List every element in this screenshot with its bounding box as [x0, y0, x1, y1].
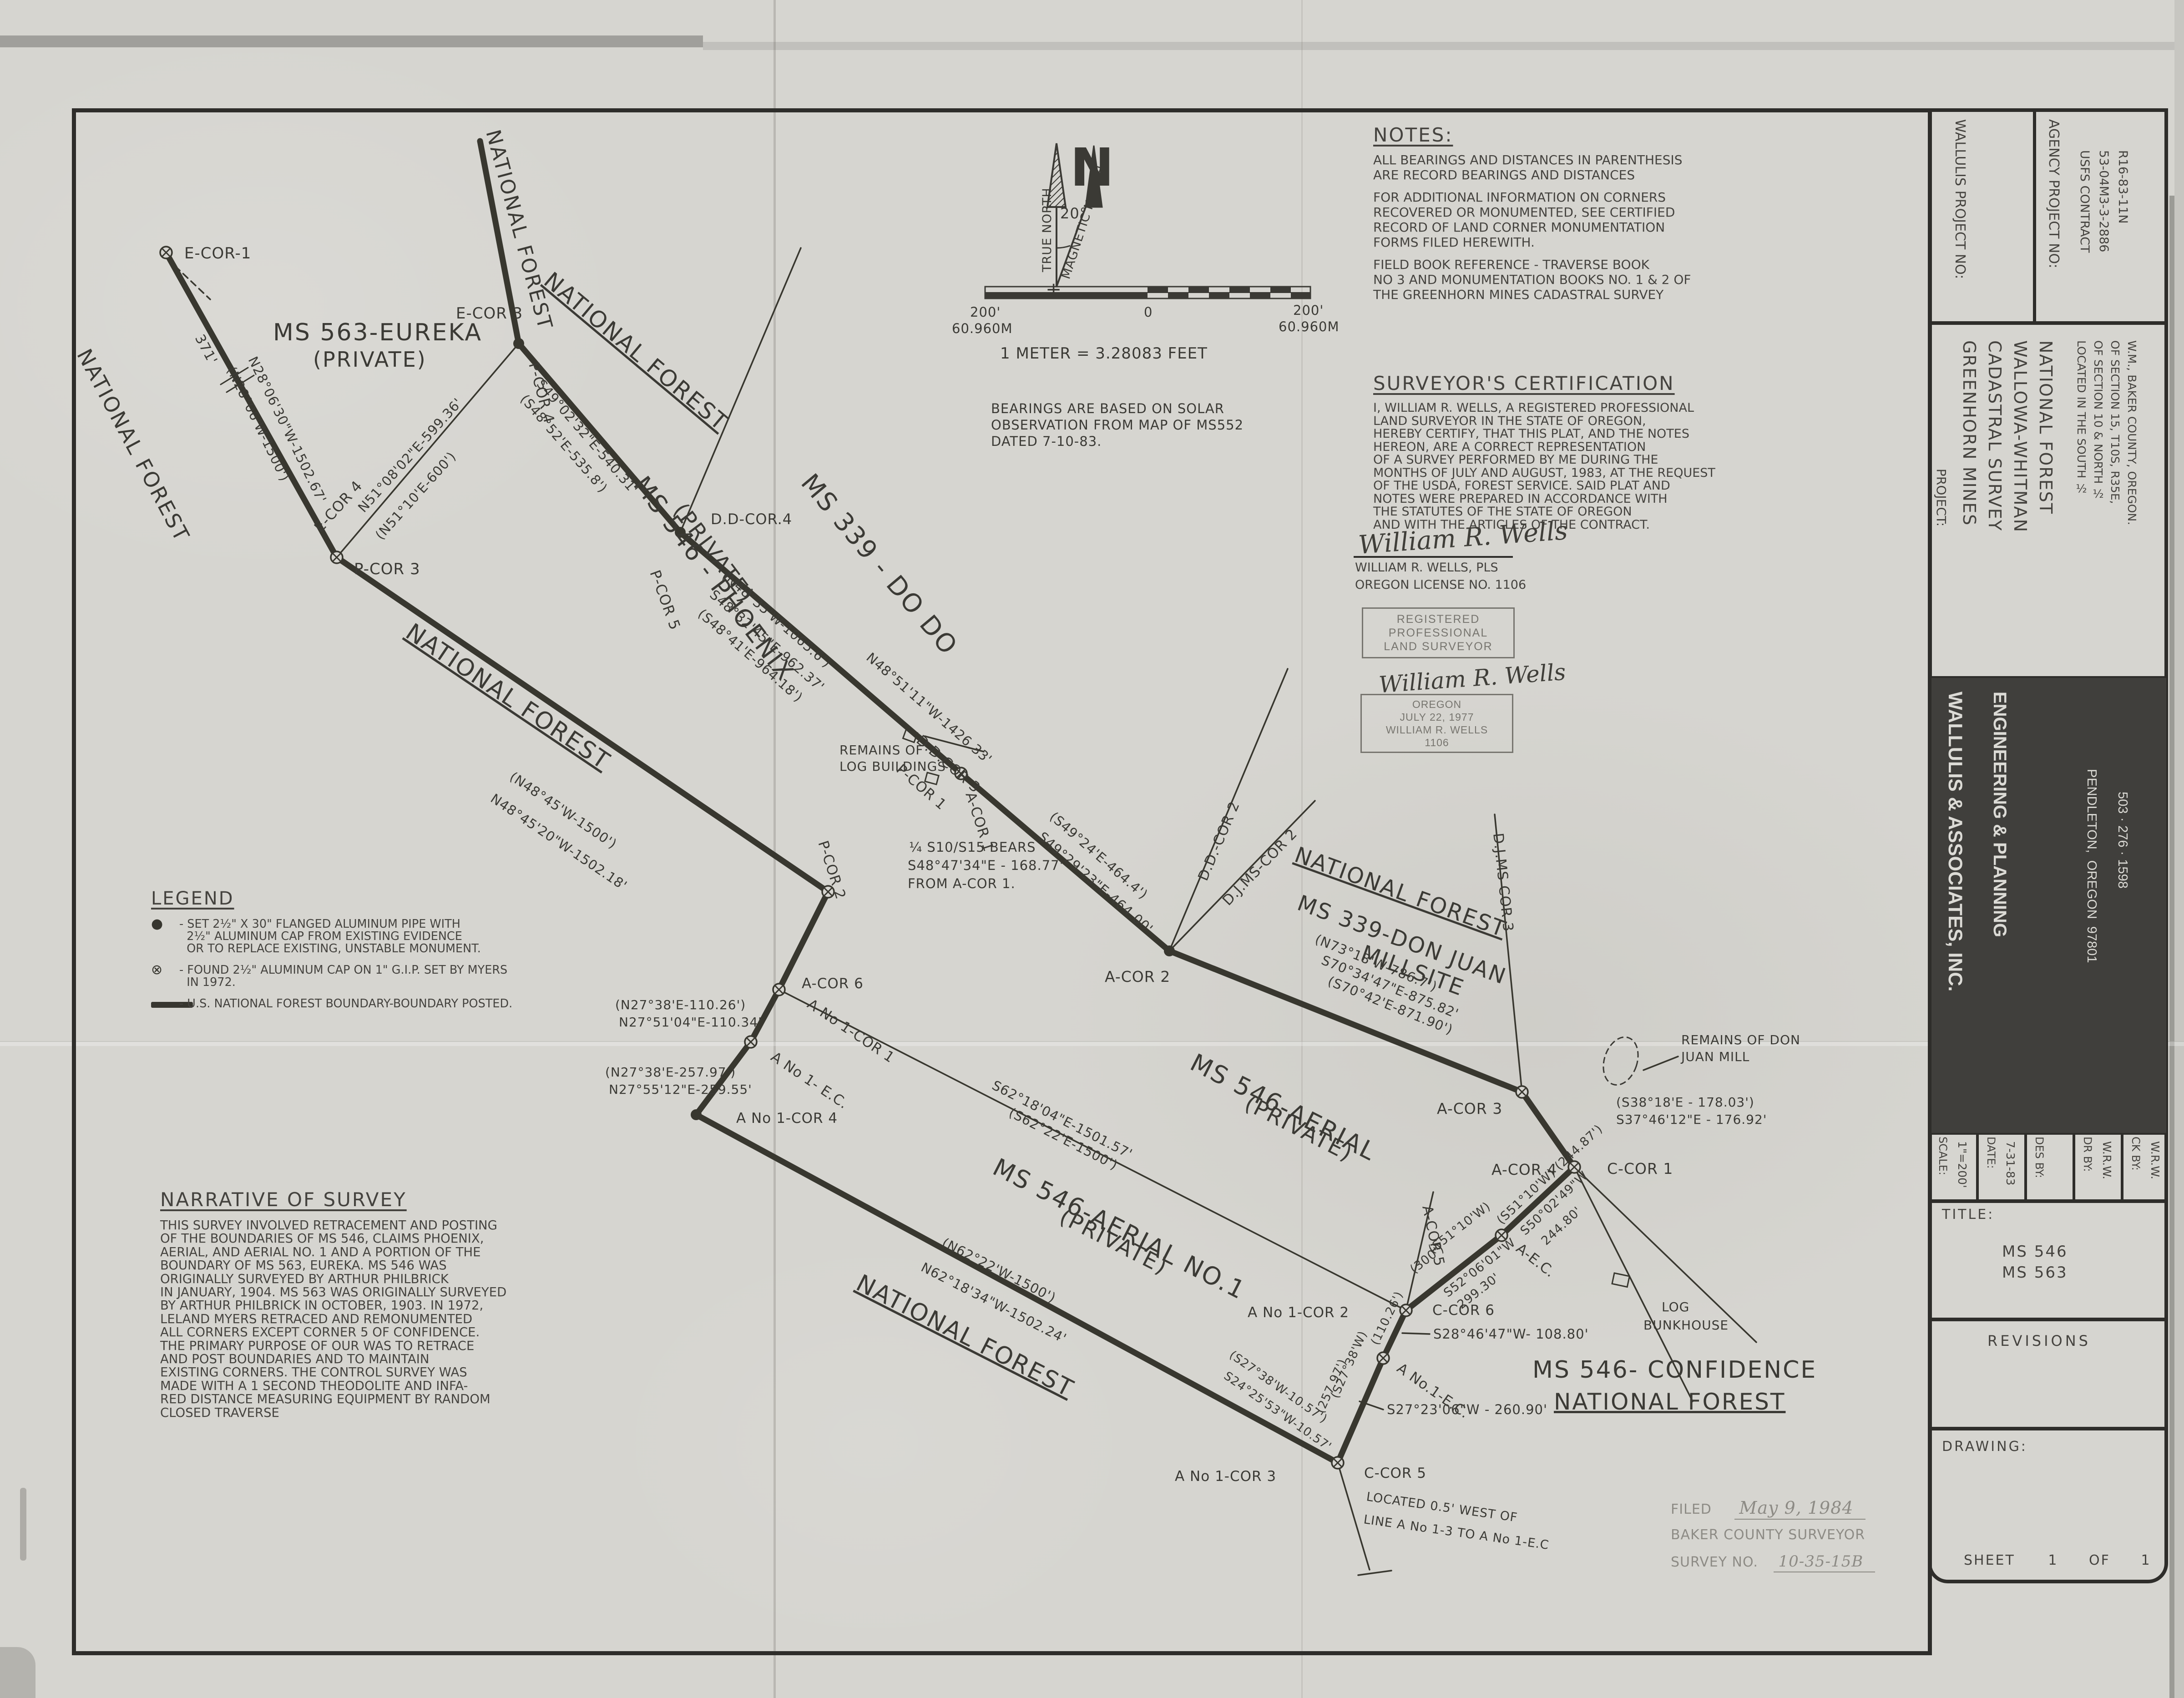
title-value: MS 546MS 563	[2002, 1241, 2068, 1283]
map-label: MS 546- CONFIDENCE	[1532, 1356, 1817, 1384]
text-line: HEREBY CERTIFY, THAT THIS PLAT, AND THE …	[1373, 428, 1919, 441]
map-label: LOG	[1662, 1299, 1689, 1314]
text-line: PROFESSIONAL	[1363, 626, 1513, 640]
text-line: ALL BEARINGS AND DISTANCES IN PARENTHESI…	[1373, 152, 1910, 167]
legend-title: LEGEND	[151, 888, 834, 909]
text-line: LAND SURVEYOR	[1363, 640, 1513, 653]
text-line: FORMS FILED HEREWITH.	[1373, 235, 1910, 250]
date-value: 7-31-83	[2004, 1141, 2017, 1186]
text-line: MS 563	[2002, 1262, 2068, 1283]
found-monument-icon	[331, 551, 343, 563]
filed-stamp: FILED May 9, 1984	[1671, 1498, 1865, 1518]
map-label: A-COR 3	[1437, 1100, 1502, 1117]
text-line: OF THE USDA, FOREST SERVICE. SAID PLAT A…	[1373, 480, 1919, 493]
map-label: 60.960M	[1279, 319, 1340, 334]
found-monument-icon	[1400, 1304, 1412, 1316]
text-line: - FOUND 2½" ALUMINUM CAP ON 1" G.I.P. SE…	[179, 964, 507, 976]
text-line: BOUNDARY OF MS 563, EUREKA. MS 546 WAS	[160, 1259, 797, 1272]
certification-block: SURVEYOR'S CERTIFICATION I, WILLIAM R. W…	[1373, 372, 1919, 531]
map-label: LOG BUILDINGS	[839, 759, 946, 774]
forest-boundary-line-icon	[151, 998, 179, 1010]
map-label: NATIONAL FOREST	[401, 618, 615, 775]
text-line: ARE RECORD BEARINGS AND DISTANCES	[1373, 167, 1910, 182]
text-line: NO 3 AND MONUMENTATION BOOKS NO. 1 & 2 O…	[1373, 272, 1910, 287]
date-label: DATE:	[1985, 1137, 1997, 1169]
tb-cell-div-1	[1976, 1133, 1979, 1202]
firm-band	[1931, 678, 2166, 1133]
map-label: MS 339 - DO DO	[795, 468, 963, 661]
text-line: IN 1972.	[179, 976, 507, 989]
text-line: EXISTING CORNERS. THE CONTROL SURVEY WAS	[160, 1366, 797, 1379]
found-monument-icon	[1332, 1457, 1344, 1469]
text-line: RED DISTANCE MEASURING EQUIPMENT BY RAND…	[160, 1393, 797, 1406]
text-line: FIELD BOOK REFERENCE - TRAVERSE BOOK	[1373, 257, 1910, 272]
of-number: 1	[2141, 1552, 2151, 1568]
text-line: NATIONAL FOREST	[2033, 340, 2058, 533]
text-line: AERIAL, AND AERIAL NO. 1 AND A PORTION O…	[160, 1246, 797, 1259]
tb-cell-div-3	[2073, 1133, 2075, 1202]
map-label: A No 1-COR 4	[736, 1110, 838, 1127]
mill-ruin-outline	[1598, 1033, 1644, 1090]
tb-cell-div-4	[2121, 1133, 2123, 1202]
found-monument-icon	[160, 247, 172, 258]
text-line: OF A SURVEY PERFORMED BY ME DURING THE	[1373, 454, 1919, 467]
claim-line	[337, 344, 519, 557]
map-label: S37°46'12"E - 176.92'	[1616, 1112, 1767, 1127]
map-label: S48°47'34"E - 168.77'	[908, 858, 1064, 873]
text-line: OF THE BOUNDARIES OF MS 546, CLAIMS PHOE…	[160, 1232, 797, 1245]
text-line: I, WILLIAM R. WELLS, A REGISTERED PROFES…	[1373, 402, 1919, 415]
map-label: DATED 7-10-83.	[991, 434, 1102, 449]
legend-item-set-monument: ● - SET 2½" X 30" FLANGED ALUMINUM PIPE …	[151, 918, 834, 955]
notes-block: NOTES: ALL BEARINGS AND DISTANCES IN PAR…	[1373, 124, 1910, 302]
notes-paragraph-2: FOR ADDITIONAL INFORMATION ON CORNERSREC…	[1373, 190, 1910, 250]
text-line: JULY 22, 1977	[1362, 711, 1512, 723]
map-label: LINE A No 1-3 TO A No 1-E.C	[1363, 1512, 1550, 1552]
scale-bar	[985, 287, 1310, 298]
set-monument-icon	[691, 1109, 702, 1120]
sheet-line: SHEET 1 OF 1	[1964, 1552, 2151, 1568]
map-label: 1 METER = 3.28083 FEET	[1000, 344, 1208, 363]
map-label: (N62°22'W-1500')	[940, 1235, 1059, 1306]
notes-paragraph-3: FIELD BOOK REFERENCE - TRAVERSE BOOKNO 3…	[1373, 257, 1910, 302]
firm-name: WALLULIS & ASSOCIATES, INC.	[1944, 692, 1966, 991]
map-label: (S38°18'E - 178.03')	[1616, 1095, 1754, 1110]
drawing-label: DRAWING:	[1942, 1439, 2027, 1455]
set-monument-icon	[513, 338, 524, 349]
text-line: LELAND MYERS RETRACED AND REMONUMENTED	[160, 1313, 797, 1326]
map-label: A No 1-COR 2	[1248, 1304, 1349, 1321]
text-line: OF SECTION 15, T10S, R35E,	[2107, 340, 2123, 525]
text-line: WILLIAM R. WELLS	[1362, 723, 1512, 736]
text-line: CLOSED TRAVERSE	[160, 1406, 797, 1420]
text-line: CADASTRAL SURVEY	[1982, 340, 2007, 533]
wallulis-project-no-label: WALLULIS PROJECT NO:	[1952, 119, 1968, 279]
map-label: P-COR 5	[646, 568, 684, 632]
building-outline	[1612, 1273, 1629, 1287]
found-monument-icon	[1377, 1352, 1389, 1364]
certification-body: I, WILLIAM R. WELLS, A REGISTERED PROFES…	[1373, 402, 1919, 531]
map-label: FROM A-COR 1.	[908, 876, 1016, 891]
map-label: NATIONAL FOREST	[72, 345, 194, 546]
text-line: THE PRIMARY PURPOSE OF OUR WAS TO RETRAC…	[160, 1339, 797, 1353]
scale-value: 1"=200'	[1956, 1141, 1969, 1188]
found-monument-circled-x-icon: ⊗	[151, 964, 179, 976]
text-line: IN JANUARY, 1904. MS 563 WAS ORIGINALLY …	[160, 1286, 797, 1299]
text-line: OREGON	[1362, 698, 1512, 711]
tb-divider-row1	[2033, 108, 2036, 325]
claim-line	[1643, 1056, 1678, 1070]
filed-date: May 9, 1984	[1734, 1498, 1865, 1520]
tb-divider-6	[1928, 1427, 2168, 1430]
map-label: S28°46'47"W- 108.80'	[1433, 1326, 1589, 1342]
text-line: HEREON, ARE A CORRECT REPRESENTATION	[1373, 441, 1919, 454]
map-label: BEARINGS ARE BASED ON SOLAR	[991, 401, 1224, 416]
map-label: 60.960M	[952, 321, 1013, 336]
set-monument-dot-icon: ●	[151, 918, 179, 930]
text-line: R16-83-11N	[2113, 150, 2132, 253]
map-label: C-COR 6	[1432, 1302, 1495, 1319]
text-line: BY ARTHUR PHILBRICK IN OCTOBER, 1903. IN…	[160, 1299, 797, 1312]
text-line: WALLOWA-WHITMAN	[2007, 340, 2033, 533]
filed-survey-no: SURVEY NO. 10-35-15B	[1671, 1552, 1875, 1571]
project-name: GREENHORN MINESCADASTRAL SURVEYWALLOWA-W…	[1956, 340, 2058, 533]
text-line: - U.S. NATIONAL FOREST BOUNDARY-BOUNDARY…	[179, 998, 512, 1010]
text-line: ALL CORNERS EXCEPT CORNER 5 OF CONFIDENC…	[160, 1326, 797, 1339]
notes-title: NOTES:	[1373, 124, 1910, 146]
agency-project-no-label: AGENCY PROJECT NO:	[2046, 119, 2062, 268]
project-label: PROJECT:	[1934, 469, 1949, 526]
ck-by-label: CK BY:	[2129, 1137, 2142, 1171]
surveyor-name: WILLIAM R. WELLS, PLS	[1355, 561, 1498, 575]
text-line: USFS CONTRACT	[2075, 150, 2094, 253]
text-line: NOTES WERE PREPARED IN ACCORDANCE WITH	[1373, 493, 1919, 506]
map-label: A-E.C.	[1513, 1240, 1558, 1281]
map-label: 0	[1144, 304, 1153, 320]
map-label: A-COR 2	[1105, 968, 1170, 985]
map-label: S27°23'06"W - 260.90'	[1387, 1402, 1547, 1417]
map-label: REMAINS OF	[839, 743, 923, 758]
surveyor-license: OREGON LICENSE NO. 1106	[1355, 578, 1526, 592]
map-label: P-COR 3	[354, 560, 420, 578]
legend-item-forest-boundary: - U.S. NATIONAL FOREST BOUNDARY-BOUNDARY…	[151, 998, 834, 1010]
text-line: THIS SURVEY INVOLVED RETRACEMENT AND POS…	[160, 1219, 797, 1232]
firm-phone: 503 · 276 · 1598	[2115, 792, 2130, 889]
map-label: A No 1-COR 3	[1175, 1468, 1276, 1485]
sheet-word: SHEET	[1964, 1552, 2015, 1568]
text-line: AND POST BOUNDARIES AND TO MAINTAIN	[160, 1353, 797, 1366]
revisions-label: REVISIONS	[1987, 1332, 2091, 1349]
map-label: OBSERVATION FROM MAP OF MS552	[991, 417, 1244, 433]
signature-rule	[1354, 556, 1513, 558]
des-by-label: DES BY:	[2033, 1137, 2046, 1178]
map-label: (N27°38'E-257.97')	[605, 1065, 736, 1080]
narrative-body: THIS SURVEY INVOLVED RETRACEMENT AND POS…	[160, 1219, 797, 1420]
firm-city: PENDLETON, OREGON 97801	[2084, 769, 2099, 963]
text-line: RECORD OF LAND CORNER MONUMENTATION	[1373, 220, 1910, 235]
map-label: 200'	[1293, 303, 1324, 318]
tb-divider-1	[1928, 321, 2168, 325]
narrative-title: NARRATIVE OF SURVEY	[160, 1188, 797, 1211]
map-label: NATIONAL FOREST	[481, 127, 557, 333]
agency-project-no-value: USFS CONTRACT53-04M3-3-2886R16-83-11N	[2075, 150, 2132, 253]
map-label: C-COR 5	[1364, 1465, 1426, 1481]
map-label: A No 1- E.C.	[768, 1049, 851, 1112]
found-monument-icon	[745, 1036, 757, 1048]
text-line: 53-04M3-3-2886	[2094, 150, 2113, 253]
text-line: W.M., BAKER COUNTY, OREGON.	[2123, 340, 2140, 525]
found-monument-icon	[1516, 1086, 1528, 1098]
notes-paragraph-1: ALL BEARINGS AND DISTANCES IN PARENTHESI…	[1373, 152, 1910, 182]
map-label: E-COR 3	[456, 304, 523, 323]
text-line: RECOVERED OR MONUMENTED, SEE CERTIFIED	[1373, 205, 1910, 220]
map-label: 20°	[1060, 205, 1087, 222]
claim-line	[1402, 1333, 1430, 1334]
text-line: MS 546	[2002, 1241, 2068, 1262]
text-line: FOR ADDITIONAL INFORMATION ON CORNERS	[1373, 190, 1910, 205]
map-label: MS 563-EUREKA	[273, 319, 482, 346]
scale-label: SCALE:	[1936, 1137, 1949, 1175]
map-label: JUAN MILL	[1680, 1049, 1749, 1064]
narrative-block: NARRATIVE OF SURVEY THIS SURVEY INVOLVED…	[160, 1188, 797, 1420]
text-line: 1106	[1362, 736, 1512, 749]
survey-plat-sheet: E-COR-1371'MS 563-EUREKA(PRIVATE)NATIONA…	[0, 0, 2184, 1698]
map-label: TRUE NORTH	[1040, 187, 1054, 273]
map-label: ¼ S10/S15 BEARS	[909, 839, 1036, 855]
text-line: MADE WITH A 1 SECOND THEODOLITE AND INFA…	[160, 1380, 797, 1393]
claim-line	[1574, 1167, 1756, 1342]
sheet-number: 1	[2048, 1552, 2058, 1568]
text-line: LOCATED IN THE SOUTH ½	[2073, 340, 2090, 525]
text-line: THE GREENHORN MINES CADASTRAL SURVEY	[1373, 287, 1910, 302]
text-line: GREENHORN MINES	[1956, 340, 1982, 533]
dr-by-label: DR BY:	[2081, 1137, 2094, 1172]
certification-title: SURVEYOR'S CERTIFICATION	[1373, 372, 1919, 394]
oregon-license-stamp: OREGONJULY 22, 1977WILLIAM R. WELLS1106	[1360, 694, 1513, 753]
map-label: +	[1046, 278, 1063, 300]
firm-dept: ENGINEERING & PLANNING	[1989, 692, 2010, 937]
text-line: REGISTERED	[1363, 612, 1513, 626]
map-label: D.J.MS-COR 2	[1219, 826, 1300, 909]
survey-no-value: 10-35-15B	[1774, 1552, 1875, 1572]
of-word: OF	[2089, 1552, 2110, 1568]
map-label: D.D-COR.4	[711, 510, 792, 528]
text-line: OR TO REPLACE EXISTING, UNSTABLE MONUMEN…	[179, 943, 481, 955]
set-monument-icon	[1164, 945, 1175, 956]
filed-label: FILED	[1671, 1501, 1712, 1517]
map-label: N27°55'12"E-259.55'	[609, 1082, 752, 1097]
survey-no-label: SURVEY NO.	[1671, 1554, 1758, 1570]
text-line: 2½" ALUMINUM CAP FROM EXISTING EVIDENCE	[179, 930, 481, 943]
claim-line	[1358, 1571, 1391, 1575]
legend-item-found-monument: ⊗ - FOUND 2½" ALUMINUM CAP ON 1" G.I.P. …	[151, 964, 834, 989]
title-label: TITLE:	[1942, 1207, 1994, 1223]
tb-divider-4	[1928, 1199, 2168, 1203]
tb-cell-div-2	[2024, 1133, 2027, 1202]
map-label: 200'	[970, 304, 1001, 320]
text-line: OF SECTION 10 & NORTH ½	[2090, 340, 2107, 525]
text-line: MONTHS OF JULY AND AUGUST, 1983, AT THE …	[1373, 467, 1919, 480]
ck-by-value: W.R.W.	[2149, 1141, 2162, 1179]
text-line: ORIGINALLY SURVEYED BY ARTHUR PHILBRICK	[160, 1273, 797, 1286]
legend-block: LEGEND ● - SET 2½" X 30" FLANGED ALUMINU…	[151, 888, 834, 1010]
text-line: LAND SURVEYOR IN THE STATE OF OREGON,	[1373, 415, 1919, 428]
map-label: REMAINS OF DON	[1681, 1032, 1800, 1047]
tb-divider-5	[1928, 1318, 2168, 1321]
text-line: THE STATUTES OF THE STATE OF OREGON	[1373, 505, 1919, 519]
map-label: N27°51'04"E-110.34'	[619, 1015, 762, 1030]
map-label: BUNKHOUSE	[1643, 1318, 1729, 1333]
project-location: LOCATED IN THE SOUTH ½OF SECTION 10 & NO…	[2073, 340, 2140, 525]
map-label: (PRIVATE)	[313, 347, 427, 372]
registered-surveyor-stamp: REGISTEREDPROFESSIONALLAND SURVEYOR	[1362, 607, 1515, 658]
map-label: C-COR 1	[1607, 1160, 1673, 1177]
map-label: NATIONAL FOREST	[1554, 1389, 1785, 1415]
map-label: (N51°10'E-600')	[372, 449, 459, 543]
map-label: D.D.-COR 2	[1195, 799, 1243, 883]
dr-by-value: W.R.W.	[2100, 1141, 2113, 1179]
text-line: - SET 2½" X 30" FLANGED ALUMINUM PIPE WI…	[179, 918, 481, 930]
map-label: E-COR-1	[184, 244, 251, 263]
filed-county: BAKER COUNTY SURVEYOR	[1671, 1527, 1865, 1543]
